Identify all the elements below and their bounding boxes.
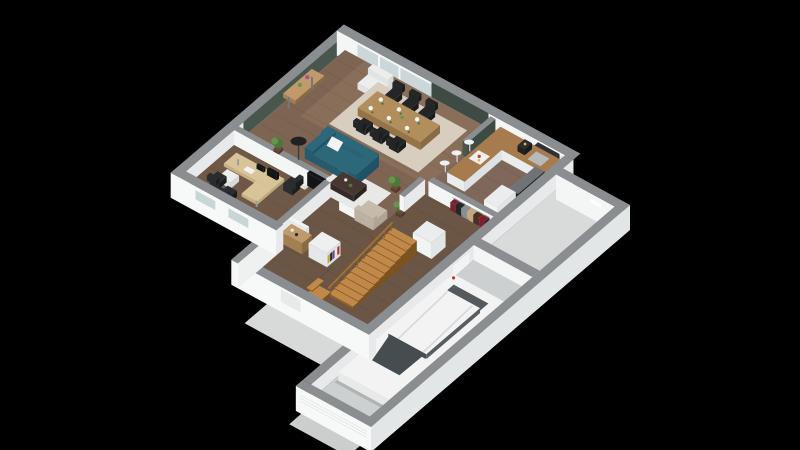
floorplan-3d-render xyxy=(0,0,800,450)
car-mirror xyxy=(425,358,428,361)
floorplan-stage xyxy=(0,0,800,450)
